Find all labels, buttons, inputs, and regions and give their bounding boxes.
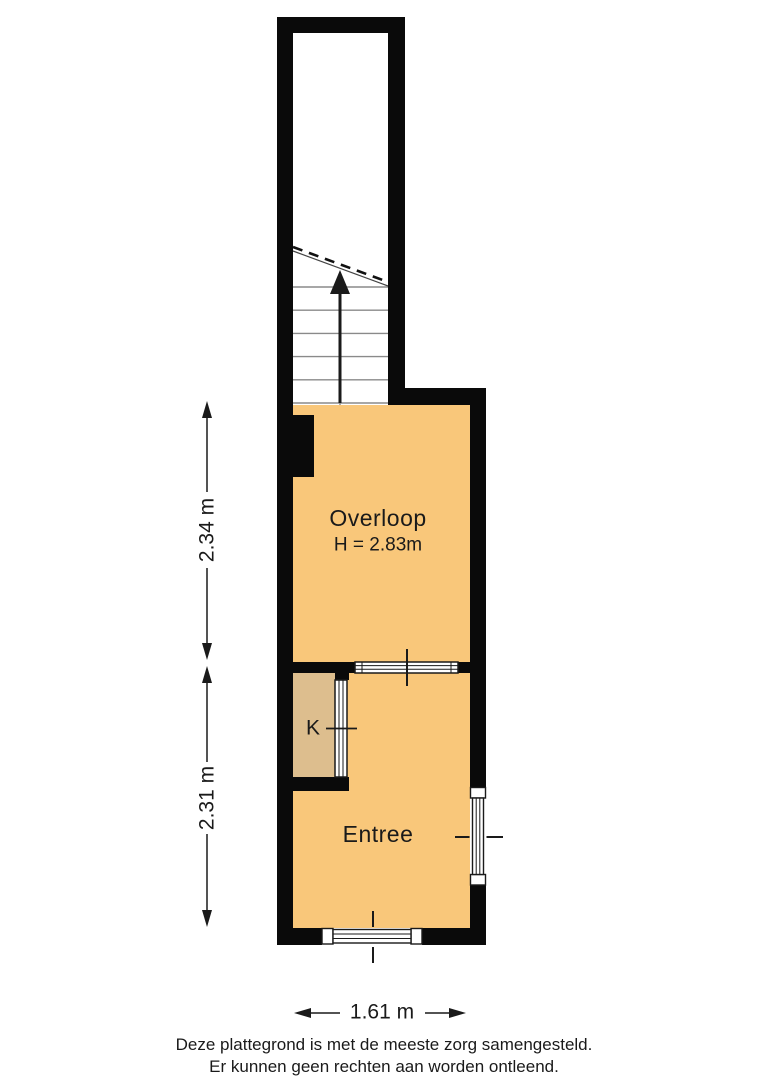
overloop-floor xyxy=(293,405,470,662)
wall-overloop-top xyxy=(405,388,486,405)
entree-room-label: Entree xyxy=(343,821,414,847)
dimension-label-lower: 2.31 m xyxy=(196,766,219,830)
wall-right-upper xyxy=(470,405,486,788)
closet-room-label: K xyxy=(306,717,320,740)
floorplan-page: 2.34 m 2.31 m 1.61 m Overloop H = 2.83m … xyxy=(0,0,768,1086)
disclaimer-line-1: Deze plattegrond is met de meeste zorg s… xyxy=(176,1035,593,1054)
wall-stair-right xyxy=(388,17,405,405)
dimension-label-bottom: 1.61 m xyxy=(350,1001,414,1024)
wall-bottom-right xyxy=(422,928,486,945)
floorplan-drawing: 2.34 m 2.31 m 1.61 m Overloop H = 2.83m … xyxy=(0,0,768,1086)
chimney-block xyxy=(293,415,314,477)
wall-closet-door-stub xyxy=(335,662,349,680)
overloop-room-label: Overloop xyxy=(329,505,426,531)
overloop-height-label: H = 2.83m xyxy=(334,535,422,556)
wall-closet-bottom xyxy=(277,777,349,791)
wall-top xyxy=(277,17,405,33)
dimension-label-upper: 2.34 m xyxy=(196,498,219,562)
wall-left xyxy=(277,17,293,945)
wall-divider-right xyxy=(458,662,470,673)
disclaimer-line-2: Er kunnen geen rechten aan worden ontlee… xyxy=(209,1057,559,1076)
wall-bottom-left xyxy=(277,928,322,945)
